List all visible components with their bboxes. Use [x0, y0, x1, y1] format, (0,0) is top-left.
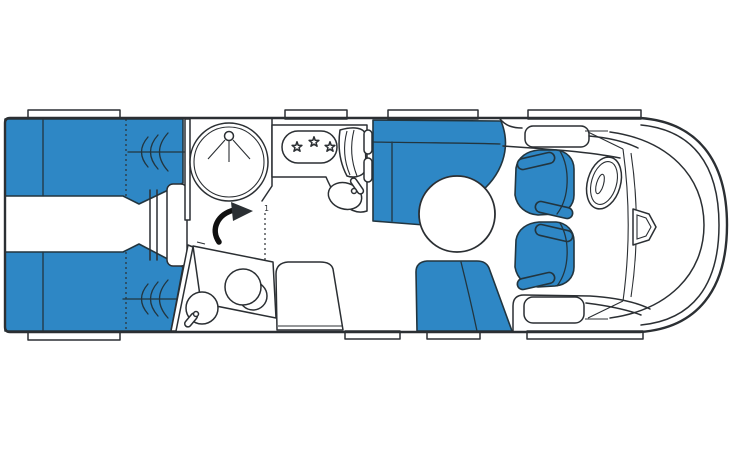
- toilet-bowl: [225, 269, 261, 305]
- wall-bed-bathroom: [185, 119, 190, 220]
- shower-head-icon: [225, 132, 234, 141]
- passenger-swivel-seat: [515, 222, 574, 291]
- side-shelf-top: [364, 130, 372, 154]
- door-marker-label: 1: [264, 204, 269, 213]
- motorhome-floorplan: 1: [0, 0, 735, 450]
- sink-drain: [352, 189, 357, 194]
- round-table: [419, 176, 495, 252]
- side-shelf-bottom: [364, 158, 372, 182]
- cab-door-panel-top: [525, 126, 589, 147]
- floorplan-svg: 1: [0, 0, 735, 450]
- cab-door-panel-bottom: [524, 297, 584, 323]
- front-wardrobe-cabinet: [167, 184, 187, 266]
- driver-swivel-seat: [515, 150, 574, 220]
- side-bench: [276, 262, 343, 330]
- washbasin-drain: [194, 312, 199, 317]
